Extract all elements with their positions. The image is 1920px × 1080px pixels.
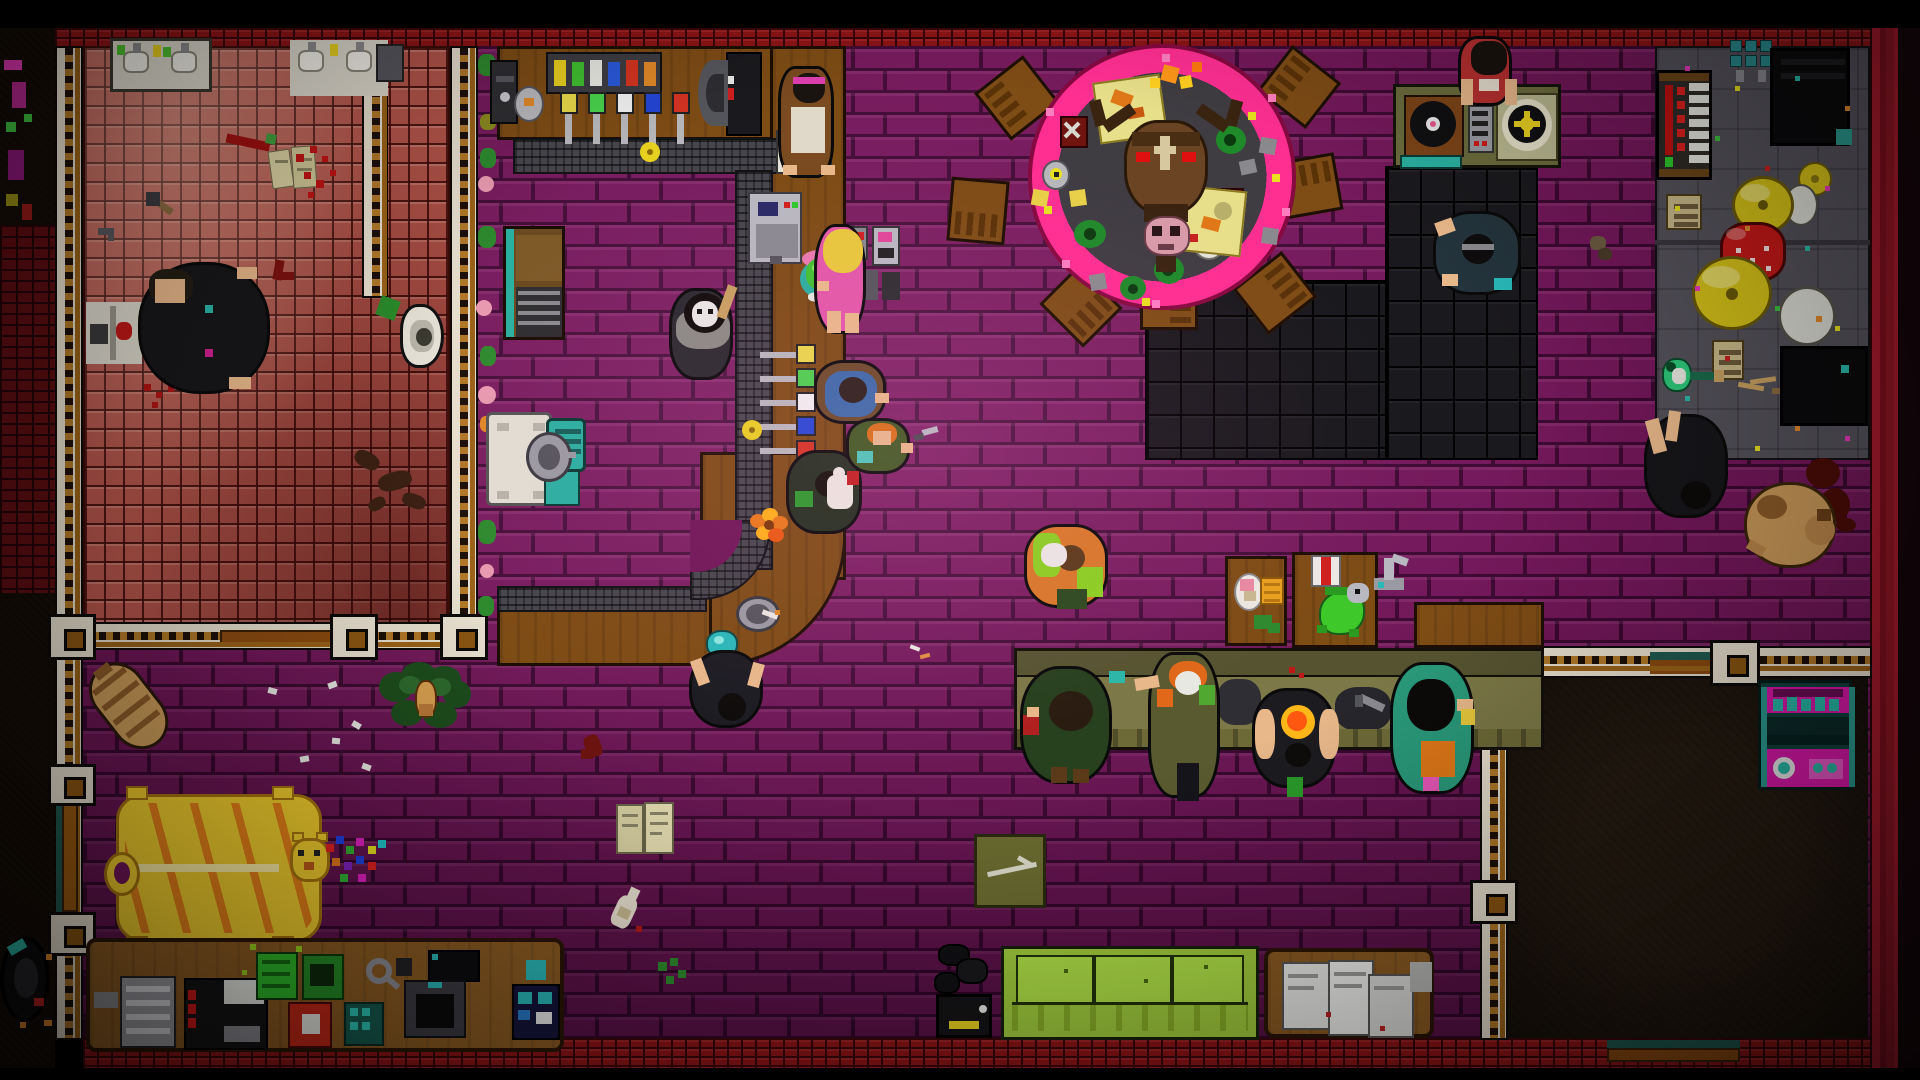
pistol (98, 224, 120, 242)
paper-desk-detail (1326, 1012, 1331, 1017)
skull-mouth (1144, 216, 1190, 256)
stage-confetti-detail (1795, 76, 1800, 81)
stage-confetti-detail (1765, 166, 1770, 171)
floor-book-detail (650, 832, 662, 835)
electronics-desk-detail (126, 1014, 170, 1020)
white-confetti-detail (351, 720, 362, 730)
electronics-desk-detail (362, 1022, 370, 1030)
wood-top (516, 235, 562, 281)
tap-head (672, 92, 690, 114)
eye (298, 850, 304, 856)
confetti-pile-detail (378, 840, 386, 848)
arcade-machine (1758, 680, 1852, 790)
stage-confetti-detail (1845, 436, 1850, 441)
door-leaf (62, 800, 78, 912)
flower (480, 564, 494, 578)
espresso-machine (748, 192, 802, 264)
electronics-desk-detail (536, 1012, 552, 1024)
electronics-desk-detail (432, 954, 438, 960)
electronics-desk-detail (416, 994, 454, 1028)
graffiti-left-detail (12, 82, 26, 108)
hatchet (146, 188, 178, 220)
dog-blood-detail (1806, 458, 1840, 488)
person-punk-mug (1024, 524, 1108, 608)
blood-spray-detail (310, 146, 317, 153)
lime-couch-detail (1104, 1019, 1108, 1023)
demon-eye (1182, 152, 1196, 162)
red-shoe-debris-detail (581, 749, 593, 759)
floor-book-detail (622, 824, 638, 827)
electronics-desk-detail (262, 960, 290, 964)
green-splat-detail (666, 976, 674, 984)
eye (314, 850, 320, 856)
confetti-pile-detail (358, 874, 366, 882)
arm (1461, 79, 1473, 105)
bottle (626, 60, 638, 86)
demon-table-chair-w (946, 177, 1009, 246)
leg (845, 313, 859, 333)
white-confetti-detail (361, 763, 372, 772)
inverted-cross-bar (1154, 146, 1176, 154)
plant (478, 520, 496, 544)
confetti-pile-detail (368, 862, 376, 870)
person-fat-man-detail (205, 349, 213, 357)
head (718, 693, 746, 721)
person-fat-man-detail (205, 305, 213, 313)
napkin (1089, 273, 1108, 292)
lime-couch-detail (1144, 979, 1148, 983)
door-splat (1588, 234, 1616, 266)
iguana-eye (1355, 589, 1360, 594)
sink-bowl (171, 51, 197, 73)
game-viewport[interactable] (0, 0, 1920, 1080)
floor-book-detail (650, 812, 668, 815)
corner-box-4 (48, 764, 96, 806)
stage-confetti-detail (1795, 426, 1800, 431)
carton-stripe (1321, 557, 1331, 585)
pink-speckle (1282, 208, 1290, 216)
gray-box-top (376, 44, 404, 82)
handle (913, 433, 924, 441)
sticky-note (1069, 189, 1087, 207)
flower (478, 176, 494, 192)
white-table-detail (533, 423, 545, 431)
person-passed-out (689, 650, 763, 728)
person-skull-face (669, 288, 733, 380)
stage-confetti-detail (1685, 66, 1690, 71)
plant (480, 346, 496, 366)
plant (478, 596, 494, 616)
dropped-knife (914, 424, 940, 444)
electronics-desk-detail (262, 972, 290, 976)
bar-gadgets-detail (878, 232, 892, 242)
olive-sofa-detail (1299, 673, 1304, 678)
crumb (1044, 206, 1052, 214)
person-punk-mug-detail (1057, 589, 1087, 609)
sink-unit-1 (110, 38, 212, 92)
graffiti-left-detail (24, 114, 32, 122)
hand (237, 267, 257, 279)
head (290, 838, 330, 882)
face (155, 279, 185, 303)
lime-couch-detail (1044, 1013, 1049, 1018)
tap-head (796, 368, 816, 388)
demon-horn (1196, 103, 1231, 132)
duffel-bag-detail (934, 972, 960, 994)
arm (1645, 418, 1667, 454)
right-curtain (1870, 28, 1898, 1068)
bar-mat-bottom (497, 586, 707, 612)
paper-desk-detail (1288, 974, 1318, 978)
plant (480, 148, 496, 168)
south-door (1607, 1048, 1740, 1062)
leg (1317, 625, 1327, 633)
headband (1462, 244, 1494, 250)
person-blonde-woman (814, 224, 866, 334)
electronics-desk-detail (538, 992, 552, 1004)
beer-taps-top (560, 92, 694, 150)
food-table-detail (1244, 591, 1256, 601)
blown-tire-detail (34, 998, 44, 1006)
small-bench-detail (518, 321, 560, 325)
stage-confetti-detail (1845, 106, 1850, 111)
hand (901, 443, 913, 453)
beer-keg-detail (496, 76, 514, 82)
bottle (590, 60, 602, 86)
arcade-machine-detail (1827, 763, 1837, 773)
arm (1134, 675, 1160, 691)
shoulder (1157, 689, 1173, 707)
nose (304, 862, 314, 870)
restroom-door (220, 630, 348, 646)
flame (1160, 64, 1180, 84)
bar-plate-detail (524, 98, 534, 106)
stage-confetti-detail (1805, 246, 1810, 251)
right-outer-edge (1898, 28, 1920, 1068)
mat-flower-1-detail (647, 149, 653, 155)
marquee-text (1773, 689, 1843, 697)
electronics-desk-detail (350, 1022, 358, 1030)
arcade-machine-detail (1773, 699, 1783, 711)
maroon-left-wall (0, 225, 55, 593)
dark-blood-smear-detail (400, 490, 427, 511)
confetti-pile-detail (356, 856, 364, 864)
food-table-detail (1264, 599, 1280, 602)
flower (478, 386, 496, 404)
text-line (275, 160, 288, 163)
paper-desk-detail (1334, 984, 1362, 988)
tap-head (796, 392, 816, 412)
person-dj (1458, 36, 1512, 106)
lime-couch-detail (1204, 965, 1208, 969)
counter-faucet-detail (1378, 582, 1384, 588)
electronics-desk-detail (262, 984, 290, 988)
boombox-detail (979, 1005, 987, 1013)
dark-blood-smear-detail (376, 468, 414, 494)
chin-tuft (1156, 256, 1176, 272)
pink-shoe (1423, 777, 1439, 791)
center (764, 520, 774, 530)
food-table-detail (1240, 579, 1254, 591)
teal-square (526, 960, 546, 980)
tap-head (588, 92, 606, 114)
body (756, 224, 798, 258)
vanity-sink (86, 302, 142, 364)
confetti-pile-detail (368, 846, 376, 854)
hand (1442, 274, 1458, 286)
tap-stick (565, 114, 572, 144)
electronics-desk-detail (350, 1008, 358, 1016)
btn (792, 202, 798, 208)
led (728, 88, 734, 100)
muzzle (419, 704, 433, 716)
graffiti-left-detail (4, 60, 22, 70)
blood-spray-detail (296, 154, 304, 162)
faucet (356, 42, 364, 52)
green-bottle (1287, 777, 1303, 797)
arcade-machine-detail (1829, 699, 1839, 711)
tap-head (616, 92, 634, 114)
tap-stick (621, 114, 628, 144)
cig-debris-detail (920, 653, 931, 659)
cig-debris (910, 646, 934, 662)
faucet (308, 42, 316, 52)
tap-stick (593, 114, 600, 144)
blood-spray (296, 146, 342, 202)
stage-confetti-detail (1725, 356, 1730, 361)
bottle (644, 62, 656, 86)
person-teal-sitter-detail (1461, 709, 1475, 725)
arm (1319, 709, 1339, 759)
person-fat-man (138, 262, 270, 394)
tap-handle (760, 424, 796, 430)
side-rail (1849, 687, 1855, 787)
person-clown-face (1148, 652, 1220, 798)
crumb (296, 946, 302, 952)
tap-head (644, 92, 662, 114)
pink-speckle (1046, 108, 1054, 116)
demon-round-table-detail (1190, 234, 1198, 242)
electronics-desk-detail (310, 964, 334, 986)
floor-book-detail (650, 822, 668, 825)
demon-round-table-detail (1054, 172, 1059, 177)
person-dance-sitter (1433, 211, 1521, 295)
eye (697, 309, 702, 314)
speaker-horn (698, 52, 762, 136)
dj-table-detail (1430, 121, 1436, 127)
sink-bowl (298, 50, 324, 72)
head (1285, 743, 1311, 767)
sink-bowl (123, 51, 149, 73)
stripe (949, 1021, 979, 1029)
olive-sofa-detail (1109, 671, 1125, 683)
white-confetti (262, 682, 378, 778)
person-fire-hands-detail (1287, 711, 1307, 731)
white-face (1175, 671, 1201, 695)
demon-round-table-detail (1224, 134, 1236, 146)
flame (1192, 62, 1202, 72)
electronics-desk-detail (188, 1018, 196, 1028)
dark-blood-smear-detail (366, 494, 388, 513)
person-denim-guy (814, 360, 886, 424)
toilet (394, 304, 444, 368)
flower-cocktail-detail (768, 528, 784, 542)
stage-confetti-detail (1835, 326, 1840, 331)
electronics-desk-detail (518, 1010, 530, 1020)
door-splat-detail (1598, 248, 1612, 260)
white-confetti-detail (267, 687, 277, 695)
blood-spray-detail (308, 192, 314, 198)
shoulder (1199, 685, 1215, 705)
blood-spray-detail (316, 180, 324, 188)
confetti-pile-detail (326, 844, 334, 852)
lime-couch (1001, 946, 1259, 1040)
btn (784, 202, 790, 208)
food-table-detail (1264, 591, 1280, 594)
duffel-bag (934, 942, 992, 996)
small-bench-detail (518, 311, 560, 315)
white-table-detail (497, 491, 509, 499)
dj-table-detail (1472, 121, 1488, 126)
funnel-inner (706, 74, 724, 112)
head (1681, 481, 1711, 509)
blood-drops-detail (152, 402, 158, 408)
electronics-desk-detail (188, 990, 196, 1000)
bottle (153, 45, 161, 57)
lime-couch-detail (1174, 1025, 1178, 1029)
screen (1767, 717, 1849, 735)
counter-faucet (1370, 556, 1412, 594)
pink-speckle (1162, 54, 1170, 62)
confetti-pile-detail (344, 862, 352, 870)
spark (46, 954, 52, 960)
pink-speckle (1268, 94, 1276, 102)
white-confetti-detail (332, 738, 340, 745)
sink-unit-2 (290, 40, 388, 96)
stage-confetti-detail (1775, 306, 1780, 311)
graffiti-left-detail (22, 204, 32, 220)
blood-spray-detail (322, 156, 328, 162)
dj-table-detail (1474, 141, 1479, 146)
electronics-desk-detail (188, 1004, 196, 1014)
crumb (1142, 298, 1150, 306)
headband (793, 77, 825, 84)
bar-gadgets-detail (878, 248, 894, 258)
person-army-jacket (846, 418, 910, 474)
tiger-tail (104, 852, 144, 900)
demon-round-table-detail (1158, 244, 1174, 250)
pistol-detail (108, 233, 114, 241)
green-splat-detail (670, 958, 678, 966)
confetti-pile (326, 834, 390, 886)
blood-drops-detail (156, 392, 162, 398)
red-cup (847, 471, 859, 485)
sticky-note (1031, 189, 1050, 208)
dark-panel (90, 324, 108, 344)
bottle-shelf (546, 52, 662, 94)
tap-head (560, 92, 578, 114)
flower-cocktail (748, 506, 790, 544)
spout (770, 256, 782, 264)
red-debris (272, 258, 296, 282)
arm (1255, 709, 1275, 759)
corner-box-7 (1470, 880, 1518, 924)
toilet-hole (416, 328, 432, 346)
olive-sofa-detail (1355, 695, 1363, 707)
hair (1471, 41, 1507, 75)
tap-handle (760, 352, 796, 358)
floor-book (616, 800, 676, 858)
teal-drink-detail (714, 636, 724, 644)
paper (1282, 962, 1334, 1030)
arm (690, 658, 710, 687)
tap-stick (677, 114, 684, 144)
red-shoe-debris (581, 733, 607, 761)
apron (791, 107, 825, 153)
bottle (572, 62, 584, 86)
demon-round-table-detail (1128, 284, 1138, 294)
paper-desk-detail (1334, 972, 1366, 976)
dog (1744, 482, 1836, 568)
dog-blood-detail (1836, 518, 1856, 532)
graffiti-left (4, 54, 50, 224)
bottle (608, 62, 620, 86)
south-door-frame (1607, 1040, 1740, 1048)
sink-bowl (346, 50, 372, 72)
tap-head (796, 416, 816, 436)
small-bench-detail (518, 301, 560, 305)
face (873, 431, 891, 445)
crumb (1248, 112, 1256, 120)
hair (823, 229, 863, 273)
paper-desk-detail (1288, 986, 1314, 990)
metal-pot-detail (538, 444, 560, 470)
white-confetti-detail (300, 755, 310, 762)
tap-handle (760, 400, 796, 406)
shoe (1073, 769, 1089, 783)
electronics-desk (86, 938, 564, 1052)
green-splat-detail (658, 962, 667, 971)
dj-table-detail (1472, 111, 1488, 116)
graffiti-left-detail (6, 122, 16, 132)
faucet (181, 43, 189, 53)
screen (758, 202, 778, 216)
small-bench (503, 226, 565, 340)
pink-speckle (1062, 260, 1070, 268)
dark-blood-smear (348, 446, 432, 520)
restroom-east-wall (450, 46, 478, 646)
knob (94, 992, 118, 1008)
chip (396, 958, 412, 976)
demon-round-table-detail (1152, 226, 1162, 236)
spilled-bottle (610, 886, 644, 932)
tiger-leg (272, 786, 294, 800)
dark-blood-smear-detail (352, 447, 383, 474)
stage-confetti-detail (1695, 286, 1700, 291)
graffiti-left-detail (8, 150, 24, 180)
head (839, 377, 867, 403)
arcade-machine-detail (1801, 699, 1811, 711)
eye (708, 309, 713, 314)
hand (783, 165, 797, 175)
graffiti-left-detail (6, 194, 18, 206)
tap-handle (760, 376, 796, 382)
iguana-desk (1292, 552, 1378, 648)
arcade-machine-detail (1787, 697, 1797, 711)
patch (1757, 495, 1787, 519)
ember (775, 610, 780, 615)
blade (146, 192, 160, 206)
